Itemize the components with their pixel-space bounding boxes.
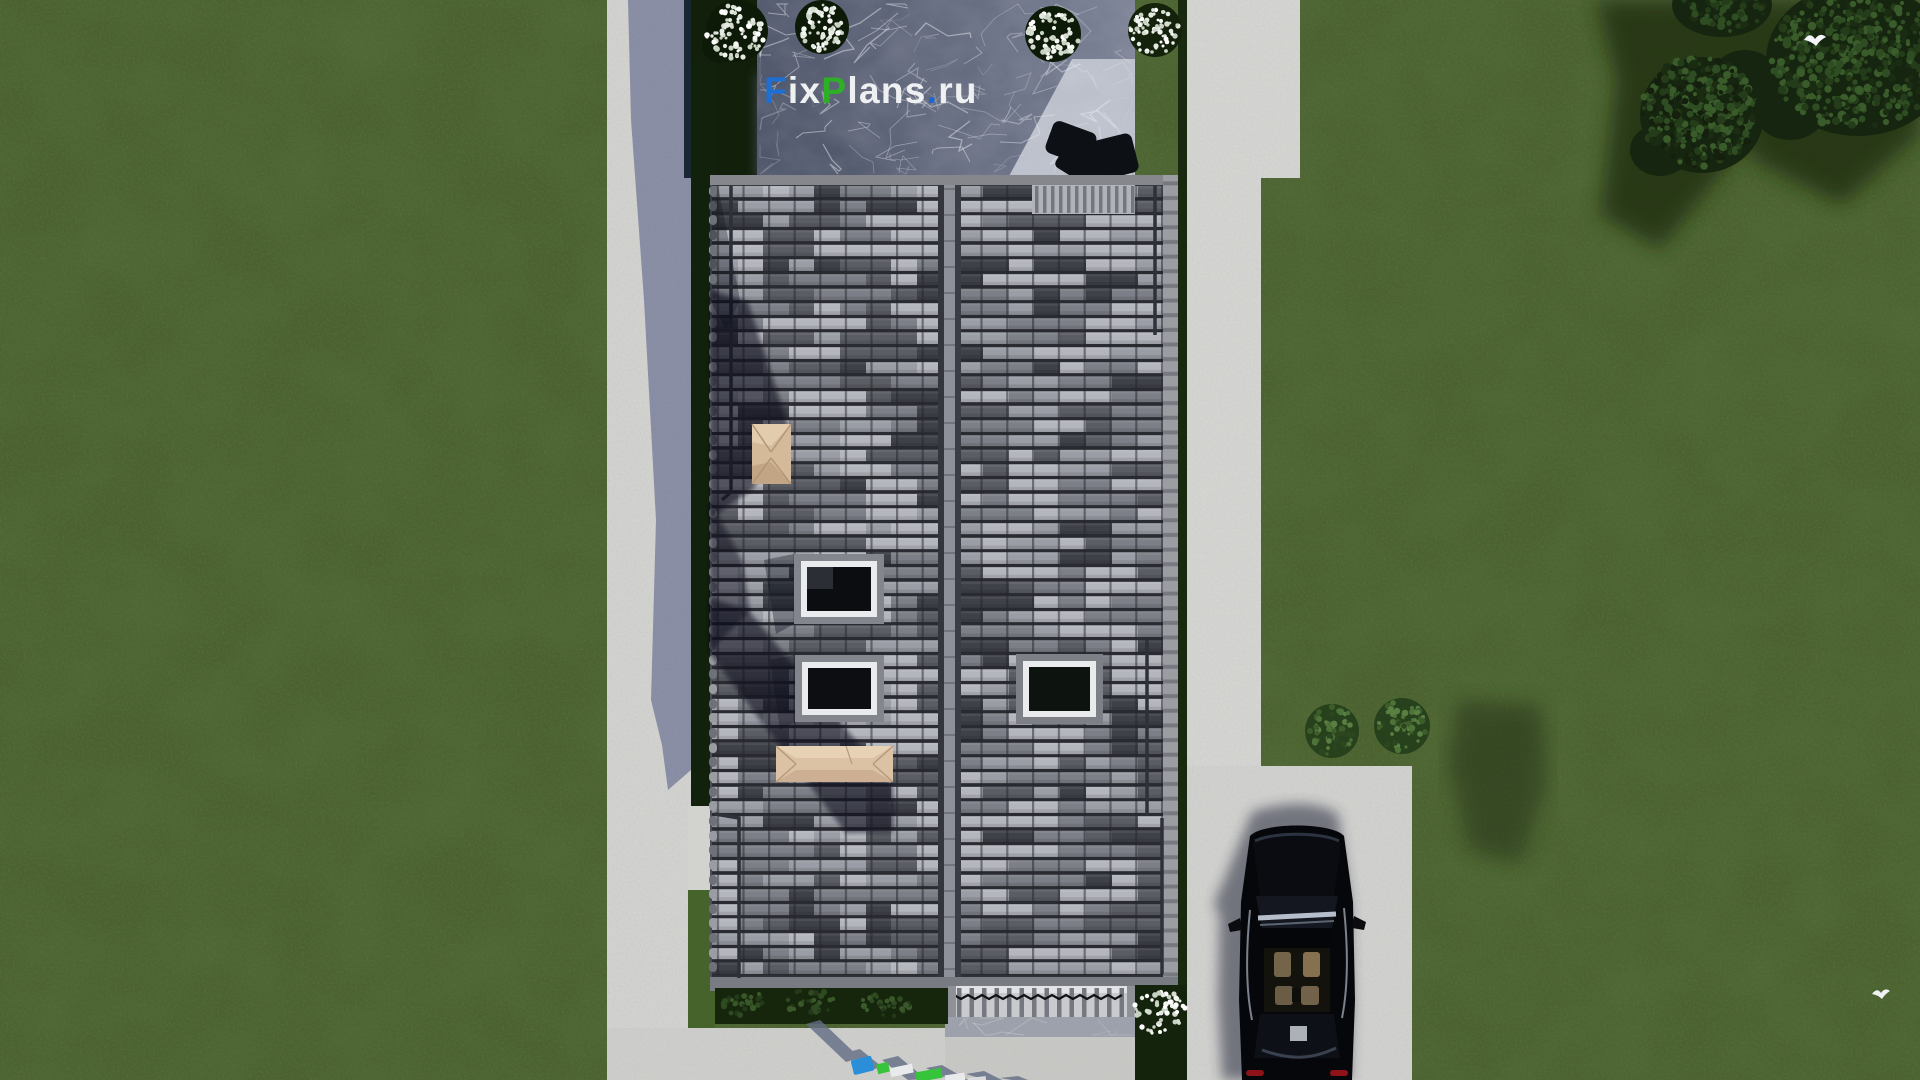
svg-text:FixPlans.ru: FixPlans.ru bbox=[764, 70, 978, 111]
